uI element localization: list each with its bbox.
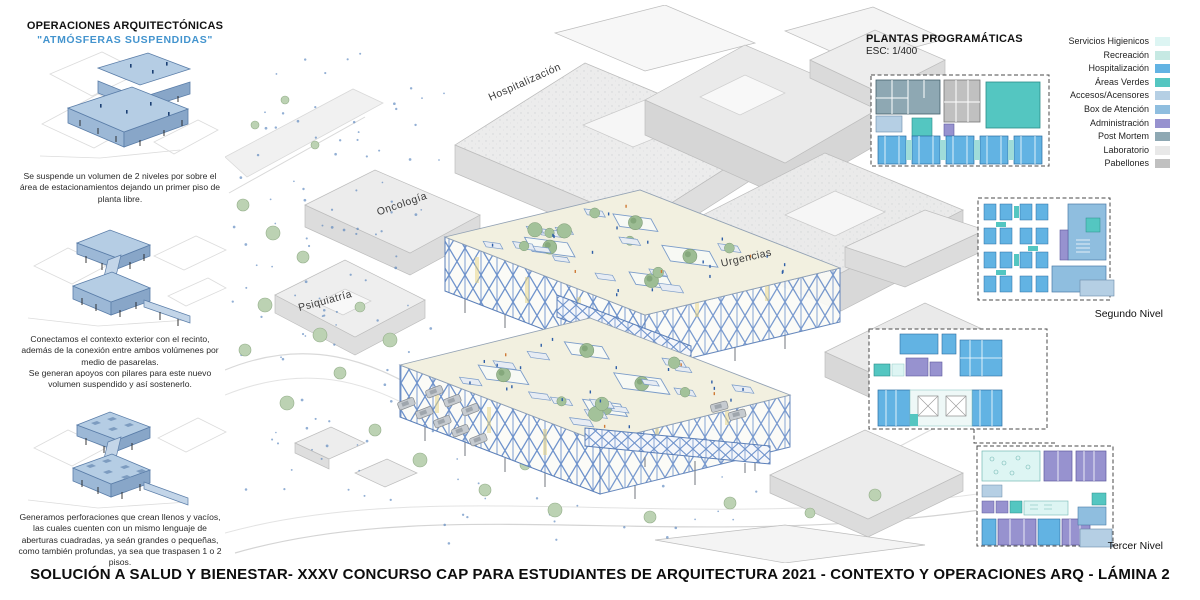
legend-swatch bbox=[1155, 159, 1170, 168]
operation-diagram-1 bbox=[40, 46, 220, 164]
operation-step-text-1: Se suspende un volumen de 2 niveles por … bbox=[14, 171, 226, 205]
operations-title: OPERACIONES ARQUITECTÓNICAS bbox=[20, 20, 230, 32]
floor-plan-tercer-nivel bbox=[974, 443, 1124, 555]
operation-step-text-3: Generamos perforaciones que crean llenos… bbox=[14, 512, 226, 569]
legend-swatch bbox=[1155, 119, 1170, 128]
segundo-nivel-label: Segundo Nivel bbox=[1063, 308, 1163, 320]
plans-scale: ESC: 1/400 bbox=[866, 46, 1023, 57]
plans-header: PLANTAS PROGRAMÁTICAS ESC: 1/400 bbox=[866, 33, 1023, 57]
legend-label: Post Mortem bbox=[1098, 132, 1149, 141]
floor-plan-1 bbox=[868, 72, 1064, 170]
operation-step-text-2: Conectamos el contexto exterior con el r… bbox=[14, 334, 226, 391]
tercer-nivel-label: Tercer Nivel bbox=[1063, 540, 1163, 552]
legend-swatch bbox=[1155, 64, 1170, 73]
legend-swatch bbox=[1155, 105, 1170, 114]
floor-plan-segundo-nivel bbox=[976, 196, 1116, 306]
legend-label: Box de Atención bbox=[1084, 105, 1149, 114]
legend-swatch bbox=[1155, 146, 1170, 155]
legend-row: Recreación bbox=[1040, 51, 1170, 60]
legend-label: Áreas Verdes bbox=[1095, 78, 1149, 87]
operation-diagram-2 bbox=[28, 226, 228, 334]
legend-row: Servicios Higienicos bbox=[1040, 37, 1170, 46]
access-ramp bbox=[144, 482, 188, 505]
legend-swatch bbox=[1155, 132, 1170, 141]
plans-title: PLANTAS PROGRAMÁTICAS bbox=[866, 33, 1023, 45]
operation-diagram-3 bbox=[28, 406, 228, 514]
legend-label: Laboratorio bbox=[1103, 146, 1149, 155]
operations-subtitle: "ATMÓSFERAS SUSPENDIDAS" bbox=[20, 34, 230, 46]
legend-label: Recreación bbox=[1103, 51, 1149, 60]
legend-swatch bbox=[1155, 91, 1170, 100]
legend-label: Hospitalización bbox=[1088, 64, 1149, 73]
legend-swatch bbox=[1155, 37, 1170, 46]
board-title: SOLUCIÓN A SALUD Y BIENESTAR- XXXV CONCU… bbox=[0, 566, 1200, 583]
suspended-volume-large bbox=[73, 272, 150, 317]
legend-label: Accesos/Acensores bbox=[1070, 91, 1149, 100]
legend-label: Administración bbox=[1090, 119, 1149, 128]
legend-label: Pabellones bbox=[1104, 159, 1149, 168]
legend-label: Servicios Higienicos bbox=[1068, 37, 1149, 46]
operations-panel-header: OPERACIONES ARQUITECTÓNICAS "ATMÓSFERAS … bbox=[20, 20, 230, 46]
floor-plan-3 bbox=[866, 326, 1062, 446]
legend-swatch bbox=[1155, 51, 1170, 60]
perforated-volume-large bbox=[73, 454, 150, 499]
legend-swatch bbox=[1155, 78, 1170, 87]
